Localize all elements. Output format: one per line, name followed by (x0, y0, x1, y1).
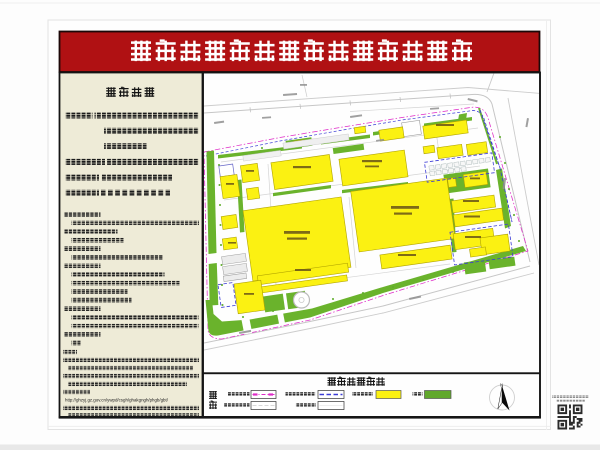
svg-text:N: N (500, 383, 503, 388)
svg-text:http://ghzyj.gz.gov.cn/ywpd/cs: http://ghzyj.gz.gov.cn/ywpd/csgh/ghakgng… (65, 398, 169, 403)
